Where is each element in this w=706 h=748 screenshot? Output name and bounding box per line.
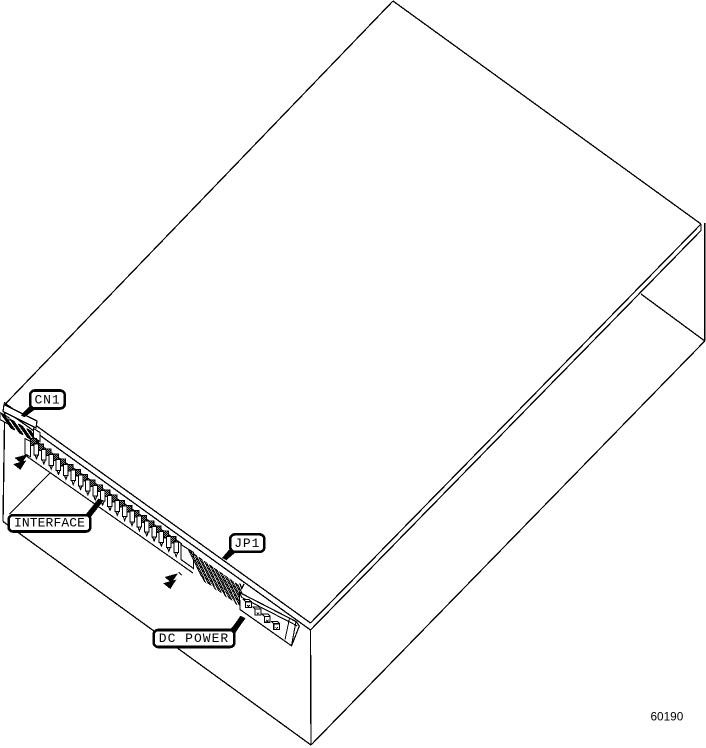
svg-text:JP1: JP1 [234, 536, 260, 551]
svg-text:CN1: CN1 [34, 393, 60, 408]
svg-text:60190: 60190 [651, 710, 684, 724]
svg-text:INTERFACE: INTERFACE [14, 516, 85, 531]
svg-text:DC POWER: DC POWER [159, 631, 229, 646]
